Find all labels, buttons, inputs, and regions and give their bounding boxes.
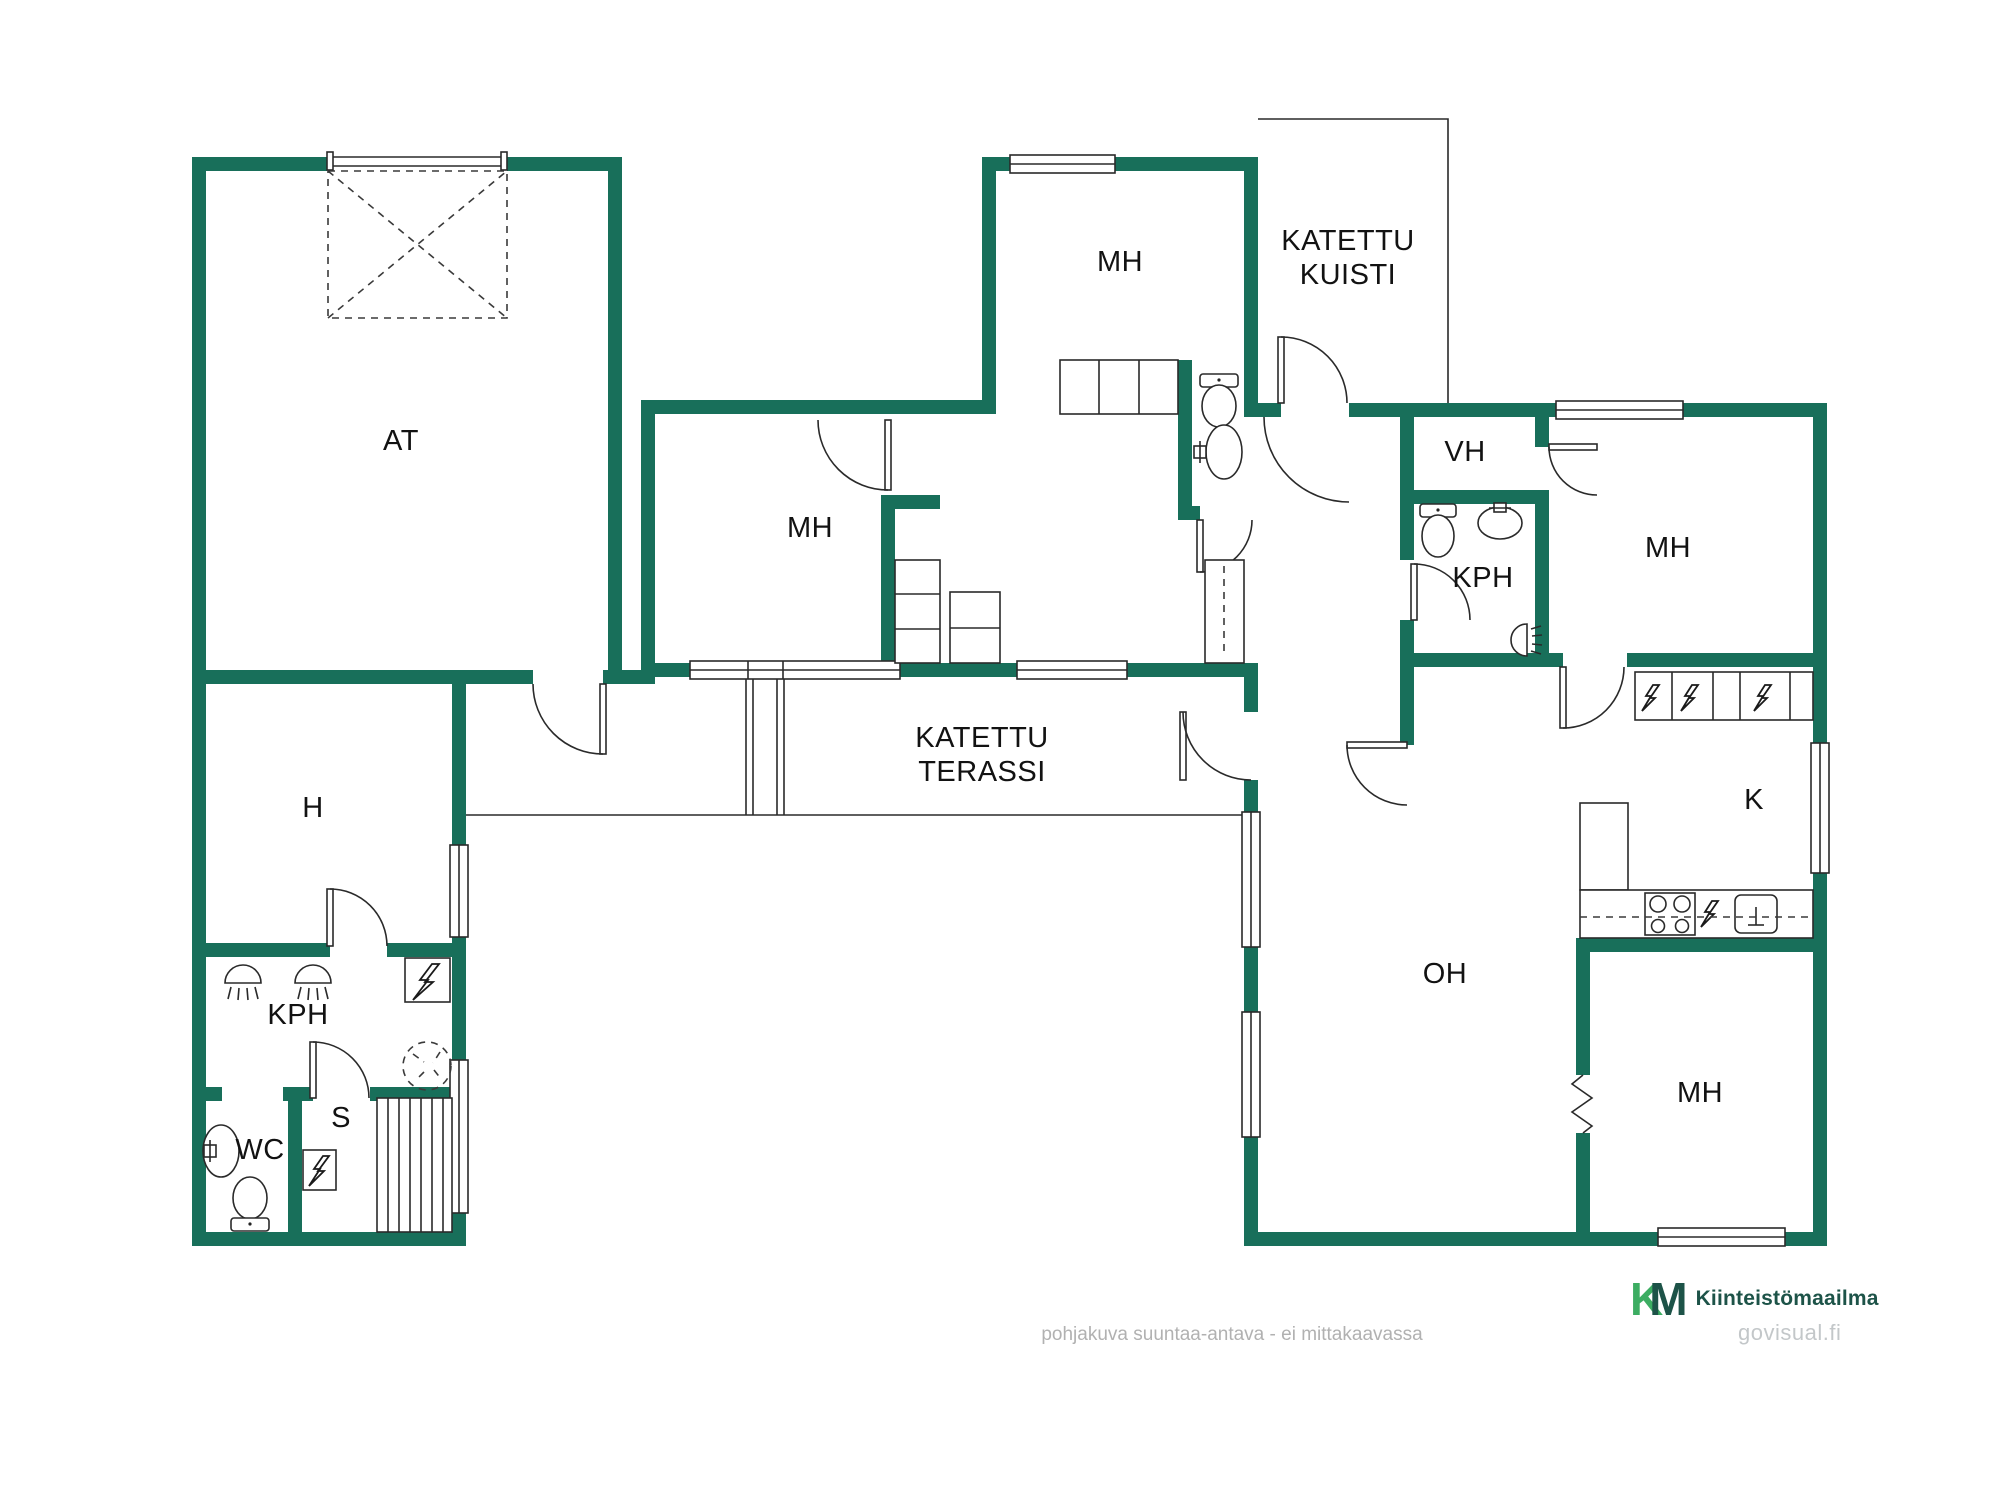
shower-head-icon	[295, 965, 331, 1000]
door-swing-icon	[1264, 337, 1349, 502]
disclaimer-text: pohjakuva suuntaa-antava - ei mittakaava…	[1041, 1324, 1422, 1346]
door-swing-icon	[1347, 742, 1407, 805]
room-label-at: AT	[383, 424, 419, 458]
electrical-panel-icon	[405, 958, 450, 1002]
window-icon	[1811, 743, 1829, 873]
tall-cabinet-icon	[1580, 803, 1628, 890]
kitchen-counter-icon	[1580, 890, 1813, 938]
room-label-k: K	[1744, 783, 1764, 817]
wall-opening-zigzag-icon	[1572, 1075, 1592, 1133]
room-label-kph-right: KPH	[1452, 561, 1513, 595]
room-label-mh-bottom: MH	[1677, 1076, 1723, 1110]
brand-name: Kiinteistömaailma	[1696, 1287, 1879, 1311]
shower-head-icon	[225, 965, 261, 1000]
walls	[192, 157, 1827, 1246]
room-label-oh: OH	[1423, 957, 1468, 991]
room-label-wc: WC	[235, 1133, 284, 1167]
washbasin-icon	[1478, 503, 1522, 539]
room-label-kph-left: KPH	[267, 998, 328, 1032]
window-icon	[1017, 661, 1127, 679]
room-label-mh-mid: MH	[787, 511, 833, 545]
logo-m-icon: M	[1649, 1272, 1687, 1326]
window-icon	[1556, 401, 1683, 419]
window-icon	[1242, 812, 1260, 947]
room-label-katettu-kuisti: KATETTUKUISTI	[1281, 224, 1414, 292]
floor-drain-icon	[403, 1042, 451, 1090]
govisual-watermark: govisual.fi	[1738, 1320, 1841, 1346]
garage-door-icon	[327, 152, 507, 170]
door-swing-icon	[1180, 712, 1251, 780]
driveway-dashed-area-icon	[328, 171, 507, 318]
sauna-benches-icon	[377, 1098, 452, 1232]
door-swing-icon	[1549, 444, 1597, 495]
door-swing-icon	[533, 684, 606, 754]
terrace-outline	[466, 677, 1244, 815]
km-kiinteistomaailma-logo: KM Kiinteistömaailma	[1630, 1272, 1879, 1326]
door-swing-icon	[327, 889, 387, 946]
kitchen-fittings	[1580, 672, 1813, 938]
door-swing-icon	[310, 1042, 369, 1098]
cabinet-icon	[950, 592, 1000, 663]
window-icon	[1242, 1012, 1260, 1137]
washbasin-icon	[1194, 425, 1242, 479]
room-label-katettu-terassi: KATETTUTERASSI	[915, 721, 1048, 789]
room-label-mh-top: MH	[1097, 245, 1143, 279]
window-icon	[690, 661, 900, 679]
cabinets	[377, 360, 1244, 1232]
wardrobe-icon	[1060, 360, 1178, 414]
room-label-s: S	[331, 1101, 351, 1135]
sauna-stove-icon	[303, 1150, 336, 1190]
window-icon	[1010, 155, 1115, 173]
window-icon	[450, 845, 468, 937]
toilet-icon	[1420, 504, 1456, 557]
toilet-icon	[231, 1177, 269, 1231]
kitchen-sink-icon	[1735, 895, 1777, 933]
cooktop-icon	[1645, 893, 1695, 935]
floor-plan: ATMHKATETTUKUISTIMHVHKPHMHKKATETTUTERASS…	[0, 0, 2000, 1500]
room-label-mh-right: MH	[1645, 531, 1691, 565]
windows	[450, 155, 1829, 1246]
toilet-icon	[1200, 374, 1238, 427]
door-swing-icon	[1560, 667, 1624, 728]
wardrobe-icon	[1205, 560, 1244, 663]
washbasin-icon	[203, 1125, 239, 1177]
window-icon	[1658, 1228, 1785, 1246]
door-swing-icon	[818, 420, 891, 490]
room-label-vh: VH	[1444, 435, 1485, 469]
wardrobe-icon	[895, 560, 940, 663]
appliance-cabinet-row-icon	[1635, 672, 1813, 720]
room-label-h: H	[302, 791, 323, 825]
